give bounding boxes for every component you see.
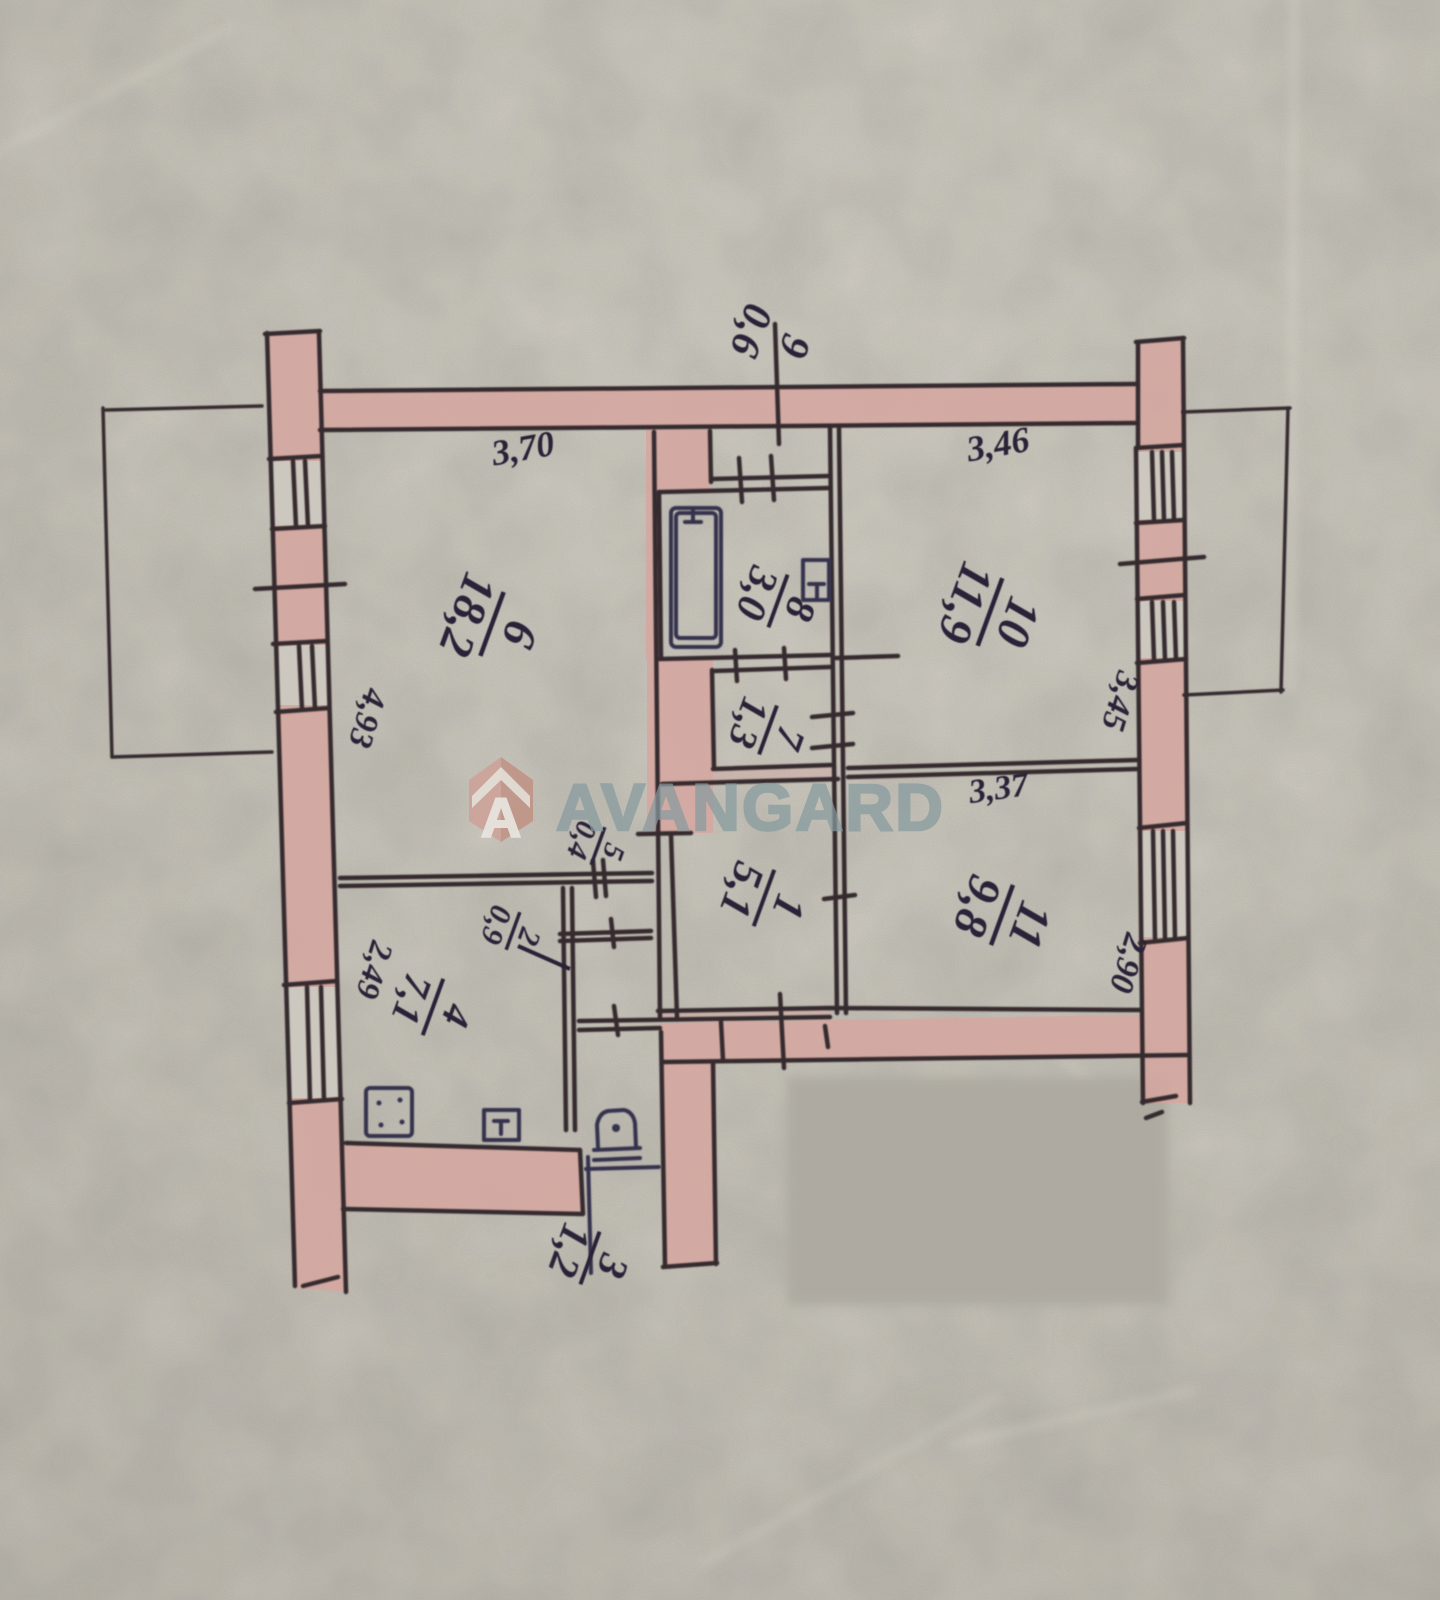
svg-text:AVANGARD: AVANGARD	[556, 770, 945, 844]
svg-text:A: A	[481, 786, 521, 849]
